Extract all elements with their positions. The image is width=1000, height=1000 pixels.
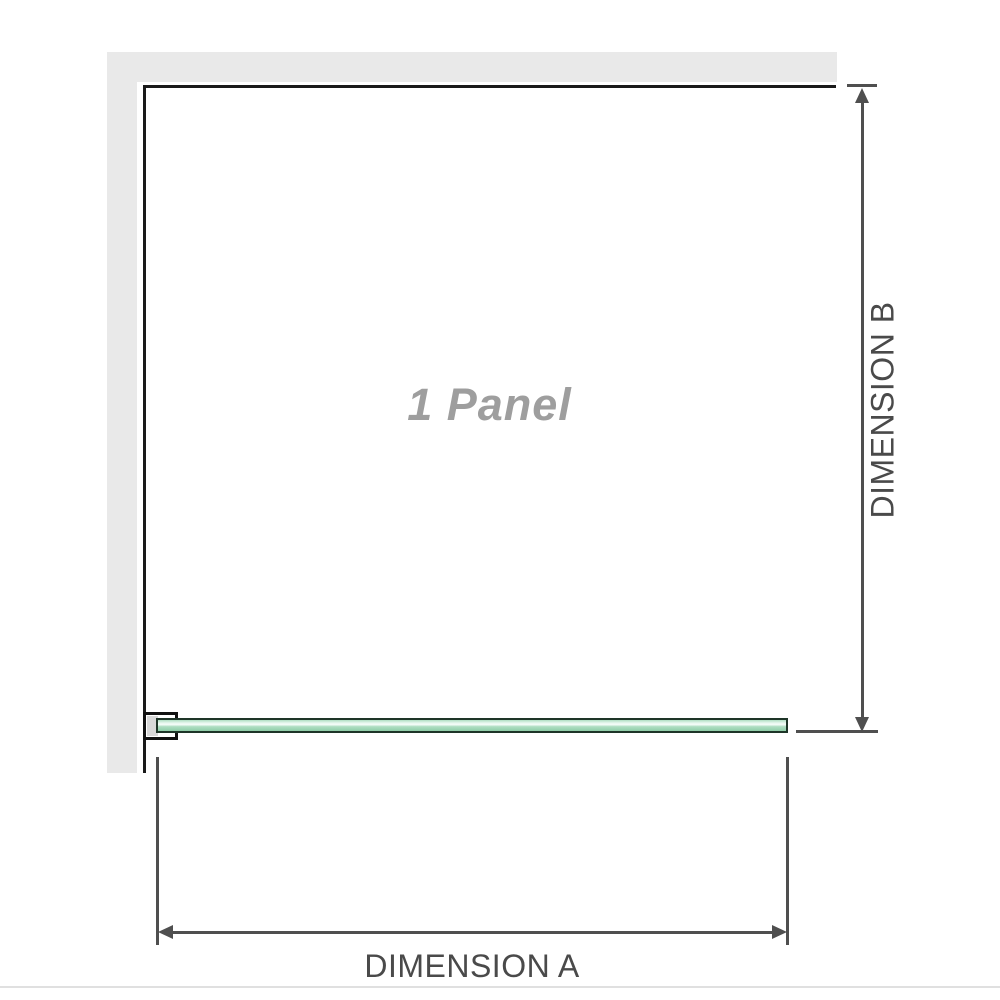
dimension-a-left-tick — [156, 757, 159, 945]
wall-top-section — [107, 52, 837, 82]
dimension-a-right-tick — [786, 757, 789, 945]
glass-panel-top-view — [156, 718, 788, 733]
dimension-b-label: DIMENSION B — [865, 301, 902, 518]
dimension-a-line — [170, 931, 775, 934]
panel-area: 1 Panel — [143, 86, 836, 723]
panel-dimension-diagram: 1 Panel DIMENSION B DIMENSION A — [0, 0, 1000, 1000]
arrow-up-icon — [855, 88, 869, 103]
baseline-divider — [0, 986, 1000, 988]
arrow-right-icon — [772, 925, 787, 939]
dimension-a-label: DIMENSION A — [157, 948, 787, 985]
wall-left-section — [107, 52, 137, 773]
panel-count-watermark: 1 Panel — [407, 379, 572, 431]
dimension-b-top-tick — [847, 84, 877, 87]
arrow-down-icon — [855, 717, 869, 732]
arrow-left-icon — [158, 925, 173, 939]
